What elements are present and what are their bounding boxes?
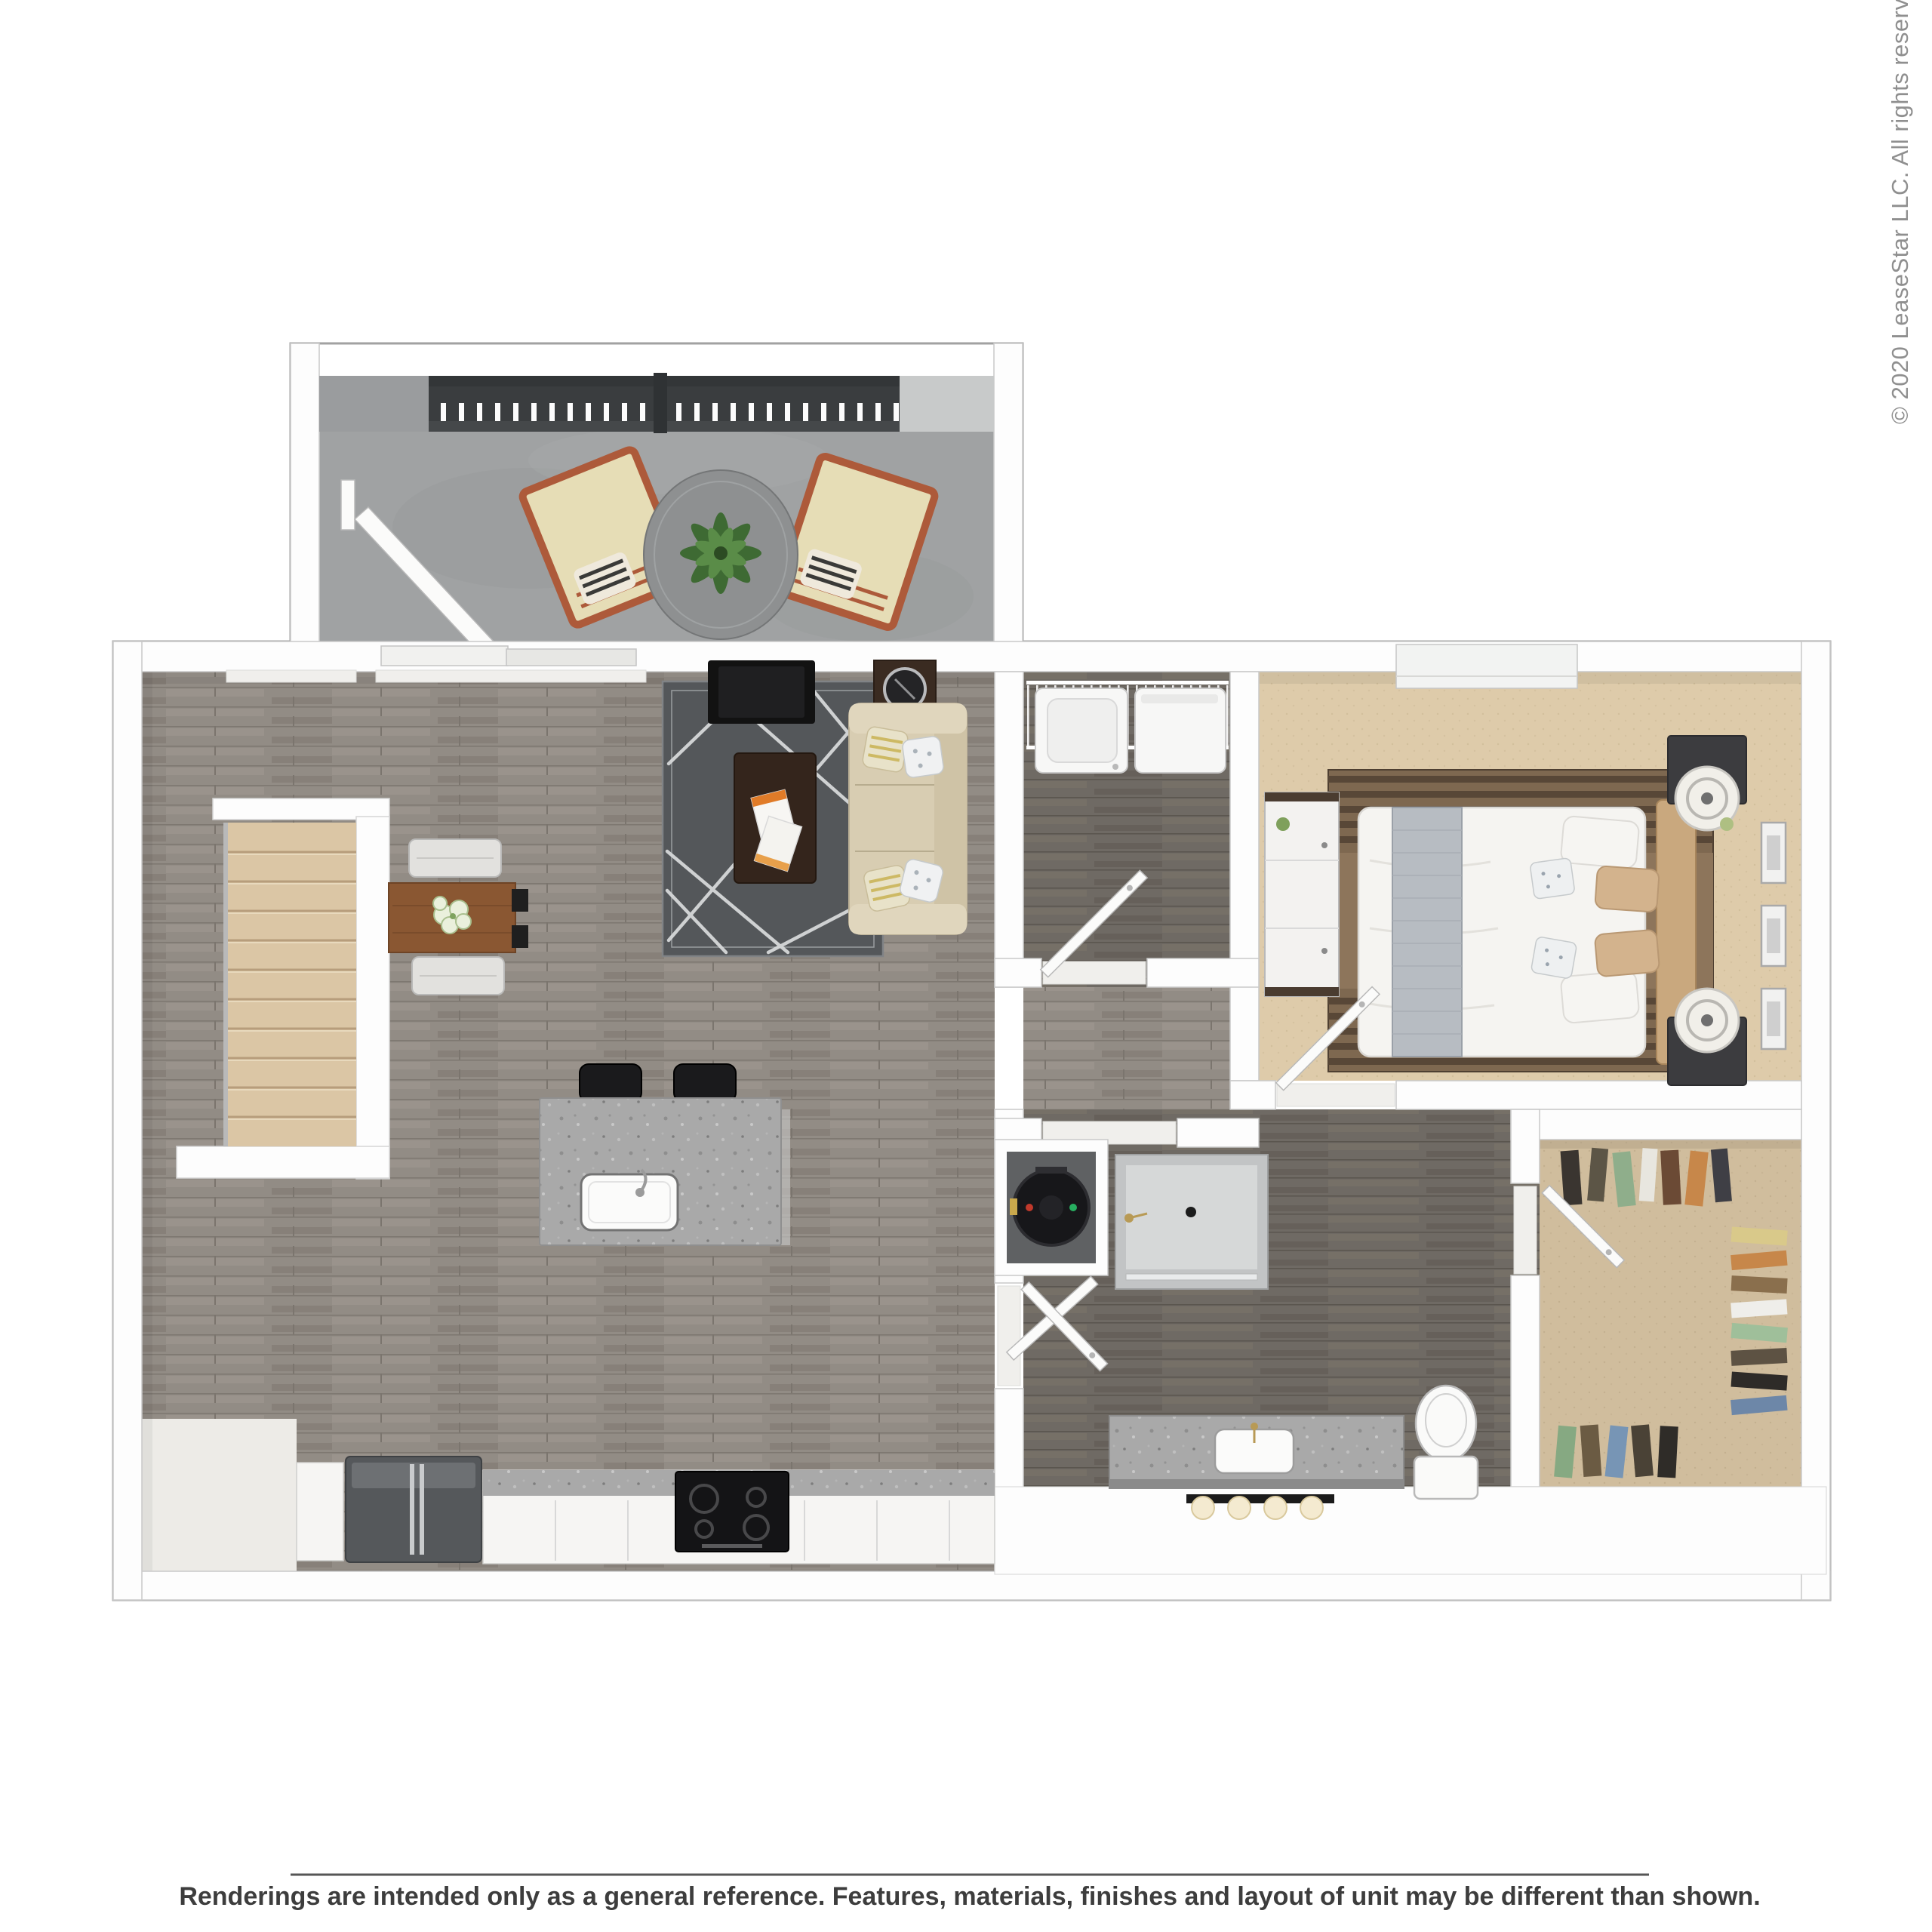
- entry-tile-floor: [142, 1419, 297, 1571]
- floor-plan-page: © 2020 LeaseStar LLC. All rights reserve…: [0, 0, 1932, 1932]
- closet-left-wall: [1511, 1109, 1540, 1183]
- wall-frames: [1761, 823, 1786, 1049]
- cabinet: [297, 1463, 343, 1561]
- stair-handrail: [223, 823, 228, 1146]
- left-wall: [113, 641, 142, 1600]
- balcony-left-wall: [291, 343, 319, 670]
- laundry-bottom-wall: [1147, 958, 1259, 987]
- toilet: [1414, 1386, 1478, 1499]
- gray-runner: [1392, 808, 1462, 1057]
- bottom-wall: [113, 1571, 1830, 1600]
- sofa-arm: [849, 904, 967, 934]
- shower: [1115, 1155, 1268, 1289]
- dining-chair: [512, 925, 528, 948]
- table-lamp: [1675, 767, 1739, 831]
- shower-glass-door: [1126, 1274, 1257, 1280]
- stairs-bottom-wall: [177, 1146, 389, 1178]
- footer-disclaimer: Renderings are intended only as a genera…: [179, 1882, 1760, 1911]
- kitchen: [297, 1457, 995, 1564]
- living-room: [663, 660, 967, 956]
- stairs-top-sill: [226, 670, 356, 682]
- bar-stool: [580, 1064, 641, 1102]
- sofa-arm: [849, 703, 967, 734]
- dining-chair: [512, 889, 528, 912]
- bottom-right-wall-mass: [995, 1487, 1826, 1574]
- bedroom-left-wall: [1230, 672, 1259, 1081]
- bedroom-door-sill: [1277, 1084, 1395, 1106]
- hall-wall: [1177, 1118, 1259, 1147]
- island-side: [781, 1109, 790, 1245]
- range-cooktop: [675, 1472, 789, 1552]
- floor-plan-rendering: © 2020 LeaseStar LLC. All rights reserve…: [0, 0, 1932, 1932]
- watermark: © 2020 LeaseStar LLC. All rights reserve…: [1887, 0, 1913, 424]
- stairs-right-wall: [356, 817, 389, 1179]
- bedroom: [1265, 736, 1786, 1091]
- balcony-railing: [429, 373, 900, 433]
- closet-top-wall: [1511, 1109, 1801, 1140]
- island-sink: [581, 1170, 678, 1230]
- tv: [708, 660, 815, 724]
- hallway-floor: [1023, 987, 1230, 1109]
- coffee-table: [734, 753, 816, 883]
- potted-plant: [680, 512, 761, 594]
- dresser-plant: [1276, 817, 1290, 831]
- shadow: [1540, 1140, 1801, 1149]
- closet-left-wall: [1511, 1275, 1540, 1487]
- sofa: [849, 703, 967, 934]
- right-wall: [1801, 641, 1830, 1600]
- dryer: [1135, 688, 1226, 773]
- queen-bed: [1358, 808, 1660, 1057]
- carpeted-steps: [226, 823, 356, 1146]
- table-lamp: [1675, 989, 1739, 1052]
- bathroom-door-sill: [998, 1286, 1020, 1386]
- washer: [1035, 688, 1128, 773]
- shower-drain: [1186, 1207, 1196, 1217]
- dresser: [1265, 792, 1339, 996]
- laundry-bottom-wall: [995, 958, 1041, 987]
- balcony-wall-cap-right: [900, 376, 994, 432]
- balcony-wall-cap-left: [319, 376, 429, 432]
- balcony-right-wall: [994, 343, 1023, 670]
- bar-stool: [674, 1064, 736, 1102]
- balcony-door-sill: [376, 670, 646, 682]
- bedroom-bottom-wall: [1230, 1081, 1275, 1109]
- closet-door-sill: [1514, 1186, 1537, 1274]
- divider-wall-upper: [995, 672, 1023, 987]
- balcony-sliding-door: [381, 646, 636, 666]
- shadow: [142, 672, 152, 1571]
- bedroom-window: [1396, 645, 1577, 688]
- refrigerator: [346, 1457, 481, 1562]
